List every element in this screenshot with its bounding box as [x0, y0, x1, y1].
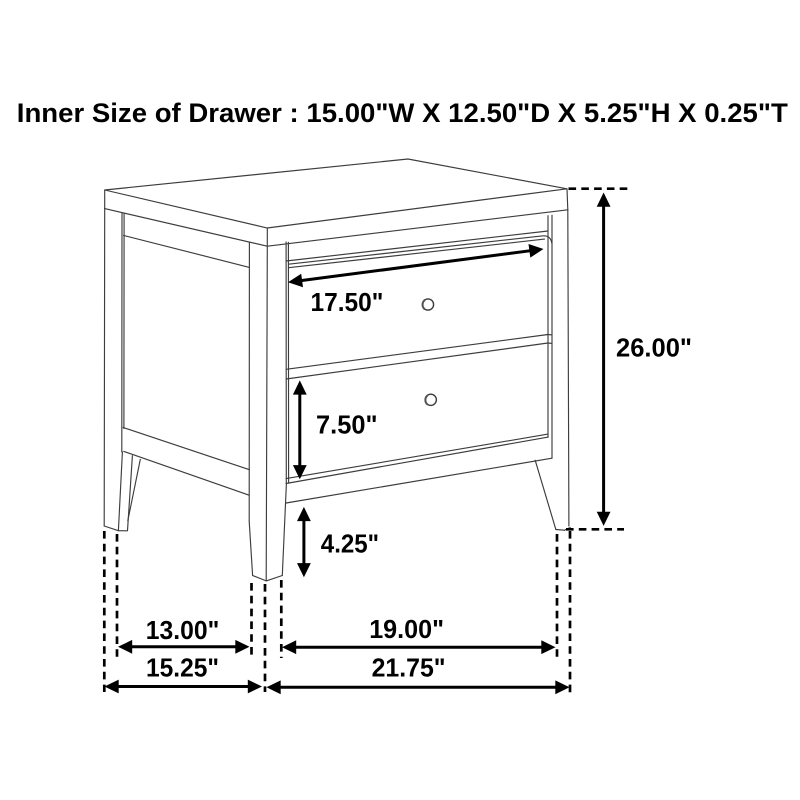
svg-text:17.50": 17.50" [311, 287, 384, 317]
svg-text:Inner Size of Drawer : 15.00"W: Inner Size of Drawer : 15.00"W X 12.50"D… [17, 98, 789, 128]
svg-text:19.00": 19.00" [369, 614, 444, 644]
svg-text:13.00": 13.00" [146, 615, 220, 645]
svg-text:7.50": 7.50" [316, 410, 378, 440]
svg-text:26.00": 26.00" [616, 332, 692, 362]
svg-text:4.25": 4.25" [321, 529, 379, 559]
svg-text:15.25": 15.25" [146, 653, 219, 683]
svg-text:21.75": 21.75" [372, 652, 446, 682]
